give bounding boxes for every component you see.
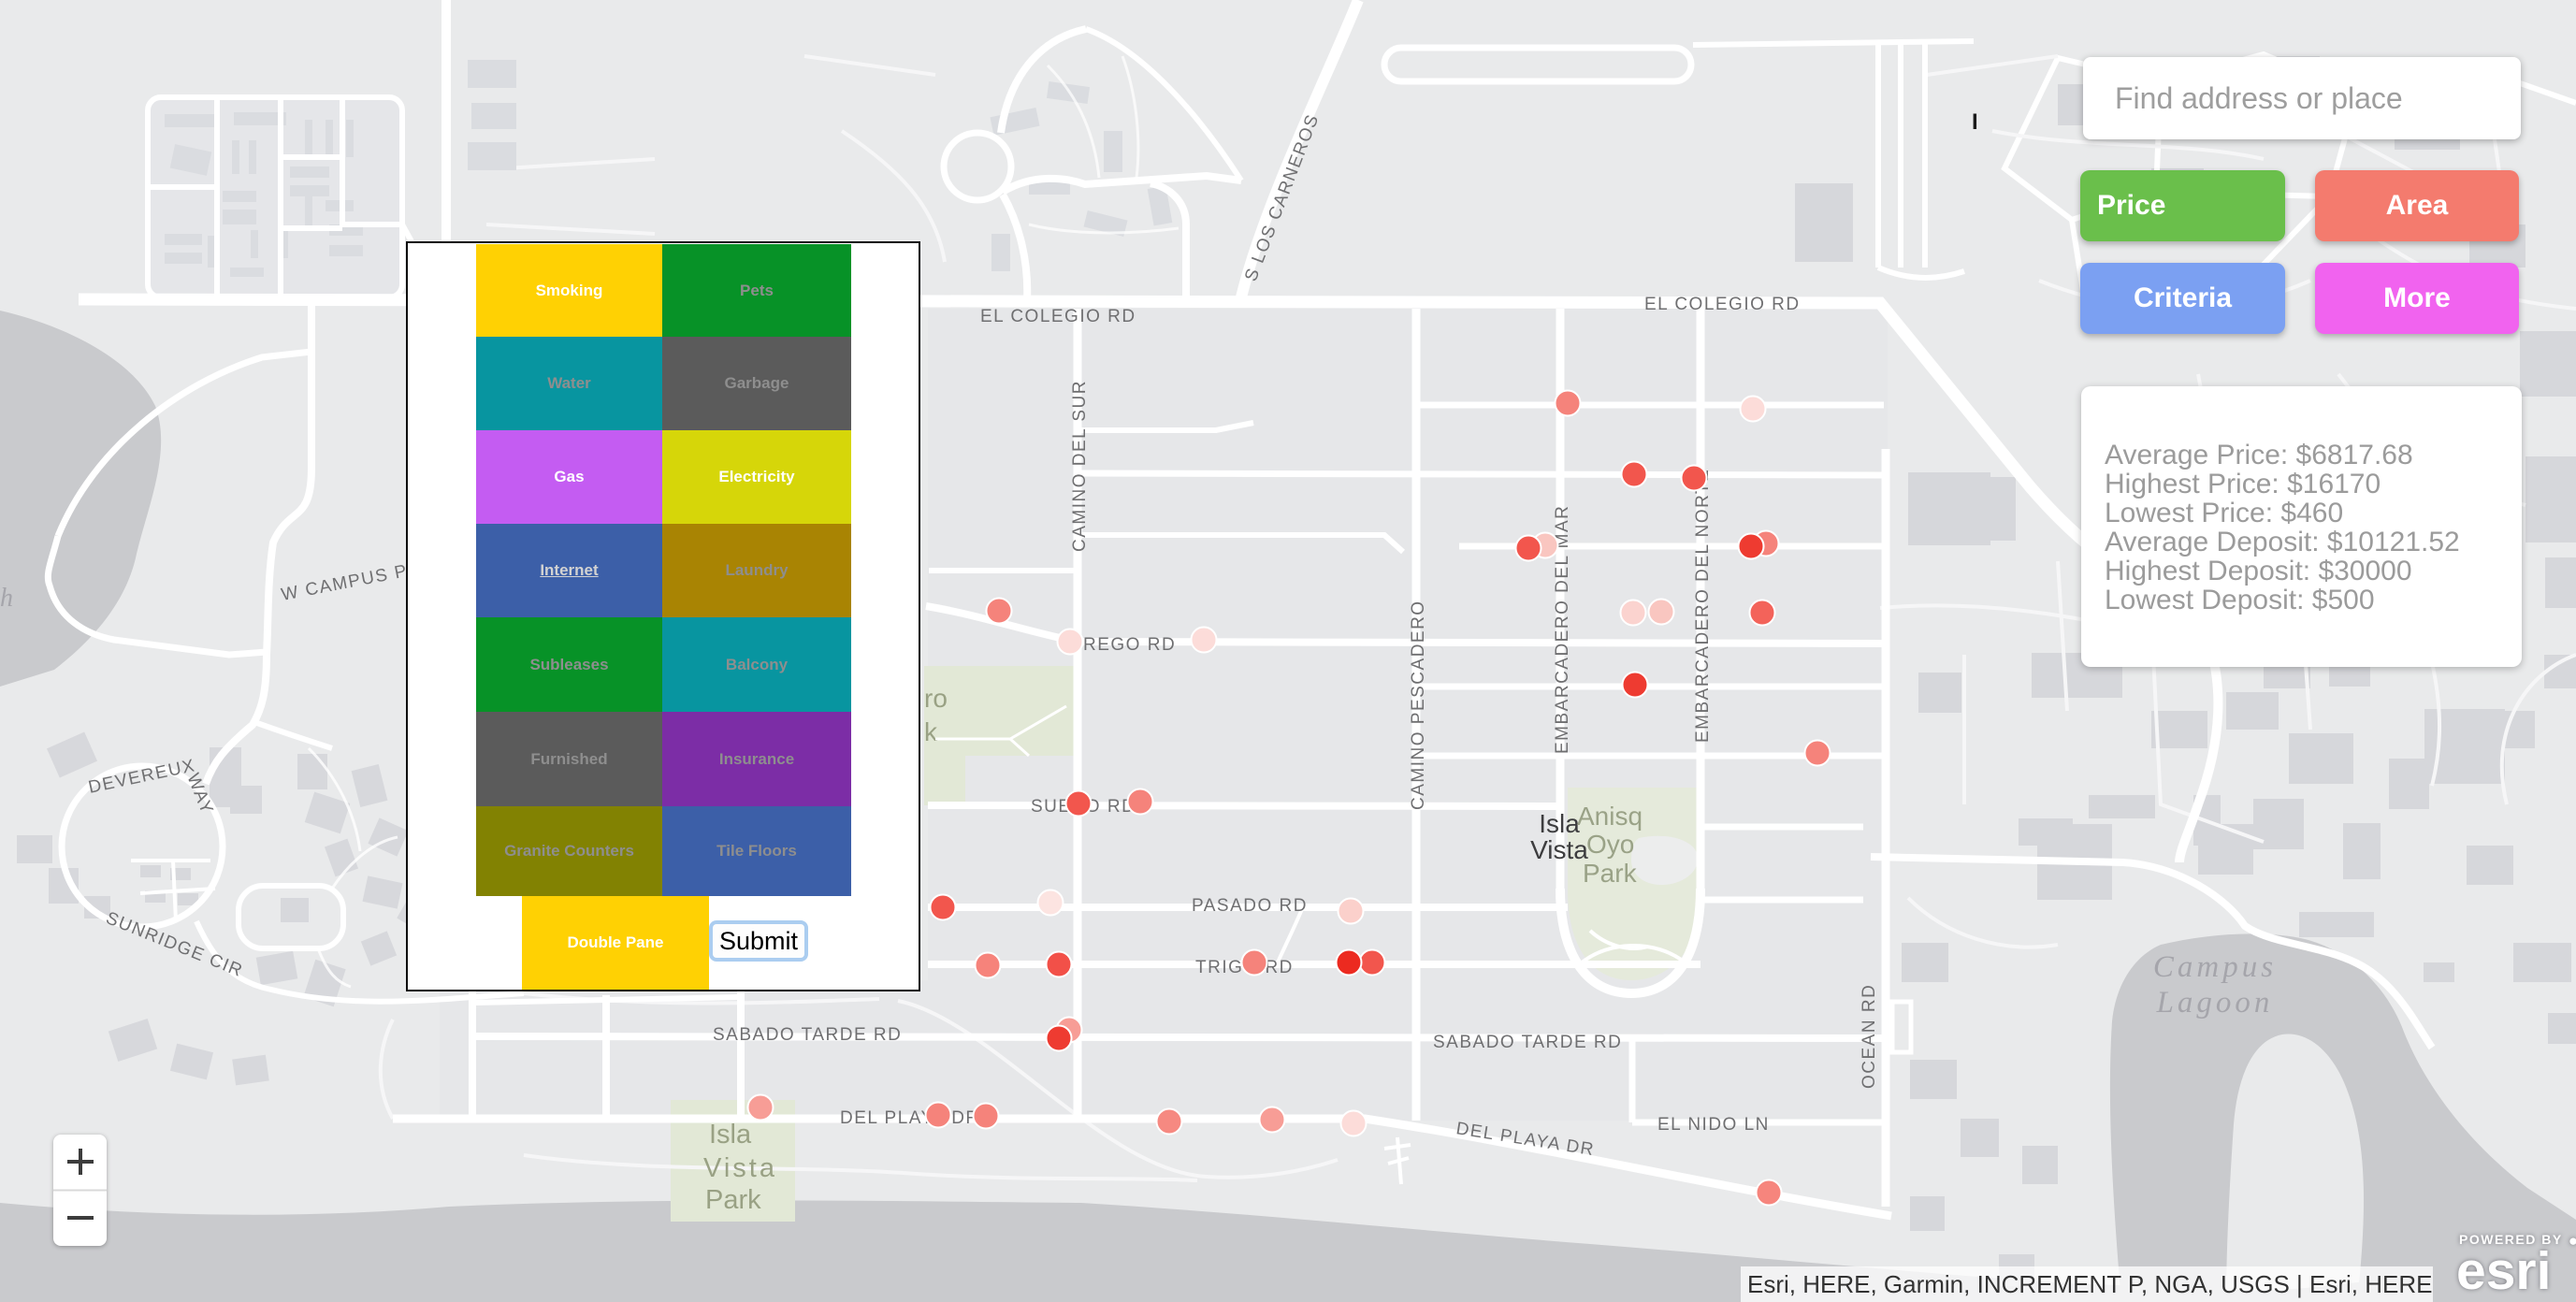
svg-text:EL COLEGIO RD: EL COLEGIO RD — [980, 307, 1136, 326]
svg-text:PASADO RD: PASADO RD — [1192, 896, 1308, 916]
svg-text:ro: ro — [924, 684, 948, 713]
svg-text:CAMINO DEL SUR: CAMINO DEL SUR — [1070, 380, 1090, 552]
svg-text:k: k — [924, 717, 938, 746]
svg-text:Vista: Vista — [703, 1153, 777, 1183]
svg-text:DEL PLAYA DR: DEL PLAYA DR — [840, 1108, 980, 1128]
svg-text:EL NIDO LN: EL NIDO LN — [1657, 1115, 1770, 1135]
svg-text:Park: Park — [1583, 859, 1638, 888]
svg-text:I: I — [1972, 109, 1978, 135]
svg-text:Isla: Isla — [709, 1120, 752, 1150]
svg-text:EMBARCADERO DEL NORTE: EMBARCADERO DEL NORTE — [1693, 469, 1713, 743]
svg-text:SABADO TARDE RD: SABADO TARDE RD — [1433, 1033, 1622, 1052]
svg-text:Isla: Isla — [1539, 809, 1580, 838]
svg-text:REGO RD: REGO RD — [1083, 635, 1176, 655]
svg-text:SABADO TARDE RD: SABADO TARDE RD — [713, 1025, 902, 1045]
svg-text:OCEAN RD: OCEAN RD — [1860, 984, 1879, 1089]
svg-text:EL COLEGIO RD: EL COLEGIO RD — [1644, 295, 1801, 314]
svg-text:Oyo: Oyo — [1586, 830, 1634, 859]
svg-text:CAMINO PESCADERO: CAMINO PESCADERO — [1409, 600, 1428, 810]
svg-text:Park: Park — [705, 1185, 761, 1215]
svg-text:Campus: Campus — [2153, 950, 2277, 984]
svg-text:Lagoon: Lagoon — [2156, 986, 2274, 1020]
svg-text:Vista: Vista — [1530, 835, 1588, 864]
svg-text:h: h — [0, 584, 13, 613]
svg-text:Anisq: Anisq — [1577, 802, 1643, 831]
